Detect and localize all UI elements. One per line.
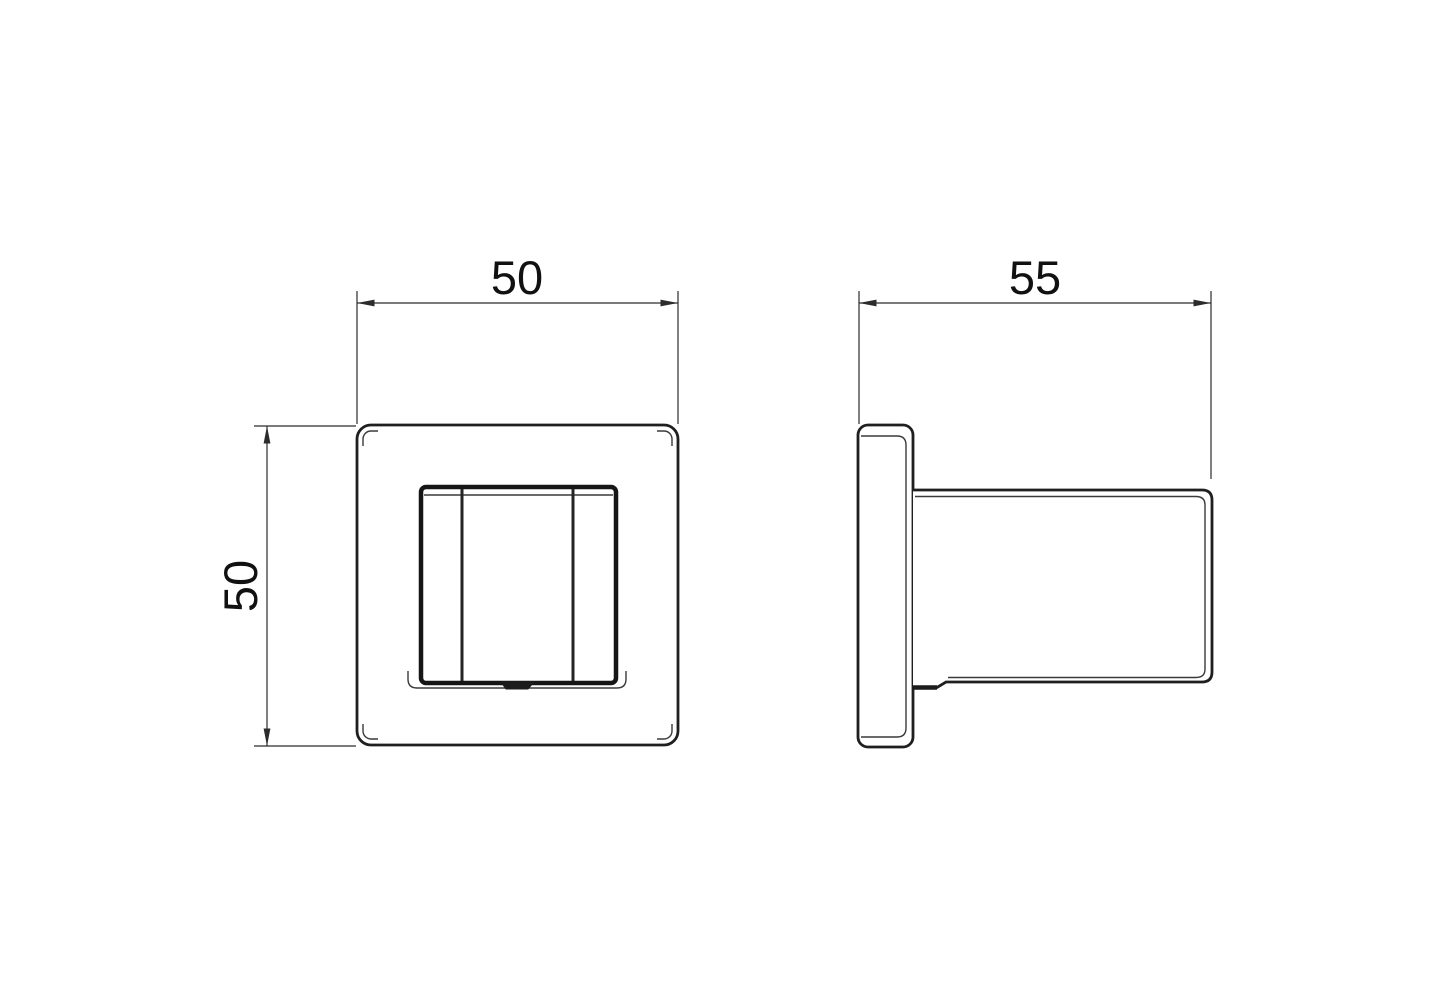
dim-side-depth-arrow-right [1194,300,1212,307]
drawing-canvas: 50 55 50 [0,0,1430,1000]
dim-front-height-label: 50 [214,560,267,612]
dim-front-height-arrow-bottom [264,729,271,747]
dim-front-height: 50 [214,426,356,746]
dim-front-width-label: 50 [491,251,543,304]
side-body [913,490,1212,688]
technical-drawing: 50 55 50 [0,0,1430,1000]
dim-front-width: 50 [357,251,678,424]
side-view [858,425,1212,747]
dim-front-height-arrow-top [264,426,271,444]
side-flange [858,425,913,747]
dim-front-width-arrow-left [357,300,375,307]
dim-side-depth-label: 55 [1009,251,1061,304]
front-view [357,425,678,745]
dim-front-width-arrow-right [661,300,679,307]
front-bottom-notch [501,682,534,689]
front-inner-boss [421,487,616,683]
dim-side-depth-arrow-left [859,300,877,307]
